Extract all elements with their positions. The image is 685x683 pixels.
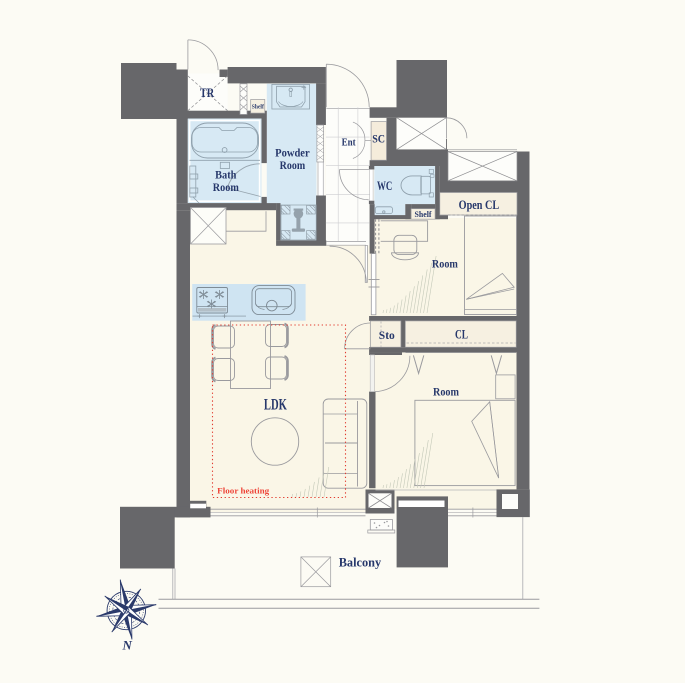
svg-text:Floor heating: Floor heating (217, 486, 270, 496)
svg-text:Sto: Sto (379, 328, 395, 342)
svg-text:CL: CL (455, 328, 468, 342)
svg-text:Ent: Ent (342, 136, 356, 148)
svg-text:Room: Room (280, 158, 306, 172)
svg-text:LDK: LDK (264, 397, 287, 414)
svg-text:Open CL: Open CL (459, 197, 500, 212)
svg-text:Room: Room (432, 257, 458, 271)
svg-text:Balcony: Balcony (339, 554, 382, 569)
svg-text:Bath: Bath (215, 170, 237, 182)
svg-text:SC: SC (372, 133, 385, 145)
svg-text:N: N (122, 638, 133, 653)
svg-text:Shelf: Shelf (252, 104, 265, 111)
svg-text:WC: WC (377, 179, 392, 193)
svg-text:Shelf: Shelf (415, 210, 432, 219)
svg-text:TR: TR (200, 86, 215, 100)
svg-text:Room: Room (213, 182, 239, 194)
svg-text:Room: Room (433, 384, 459, 398)
